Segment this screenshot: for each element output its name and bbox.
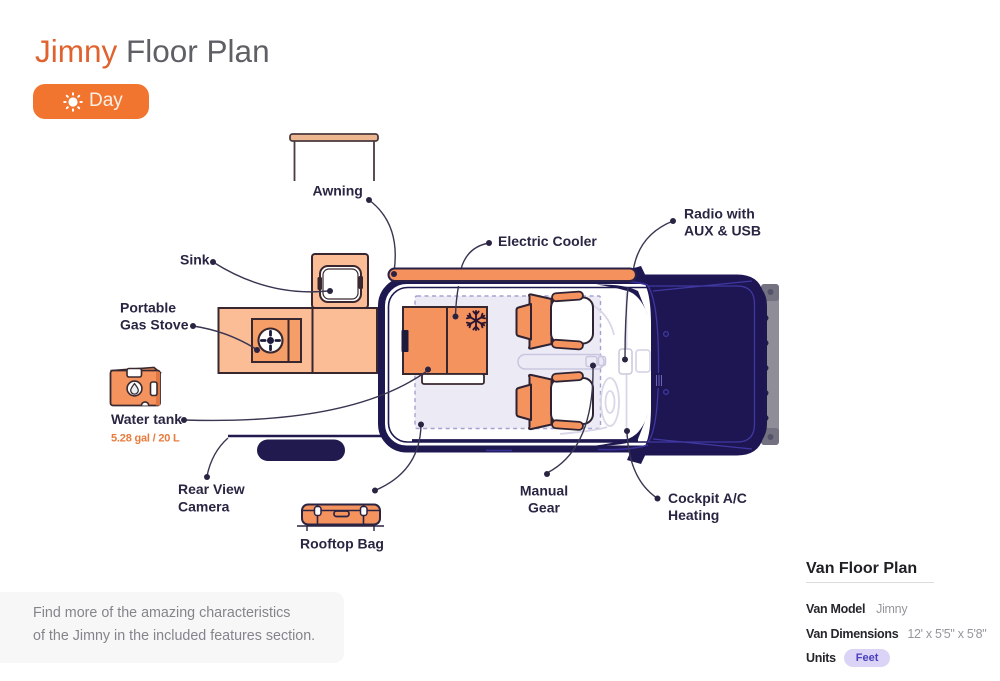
svg-text:Portable: Portable (120, 300, 176, 316)
svg-text:Cockpit A/C: Cockpit A/C (668, 490, 747, 506)
svg-text:Water tank: Water tank (111, 411, 182, 427)
svg-text:AUX & USB: AUX & USB (684, 223, 761, 239)
svg-text:Radio with: Radio with (684, 206, 755, 222)
svg-text:Camera: Camera (178, 499, 230, 515)
svg-text:Rear View: Rear View (178, 481, 245, 497)
svg-text:Awning: Awning (313, 183, 363, 199)
svg-text:Sink: Sink (180, 252, 210, 268)
svg-text:Gear: Gear (528, 500, 560, 516)
svg-text:Electric Cooler: Electric Cooler (498, 233, 597, 249)
svg-text:Gas Stove: Gas Stove (120, 317, 189, 333)
svg-text:Manual: Manual (520, 483, 568, 499)
svg-text:Heating: Heating (668, 507, 719, 523)
svg-text:5.28 gal / 20 L: 5.28 gal / 20 L (111, 433, 180, 445)
svg-text:Rooftop Bag: Rooftop Bag (300, 536, 384, 552)
